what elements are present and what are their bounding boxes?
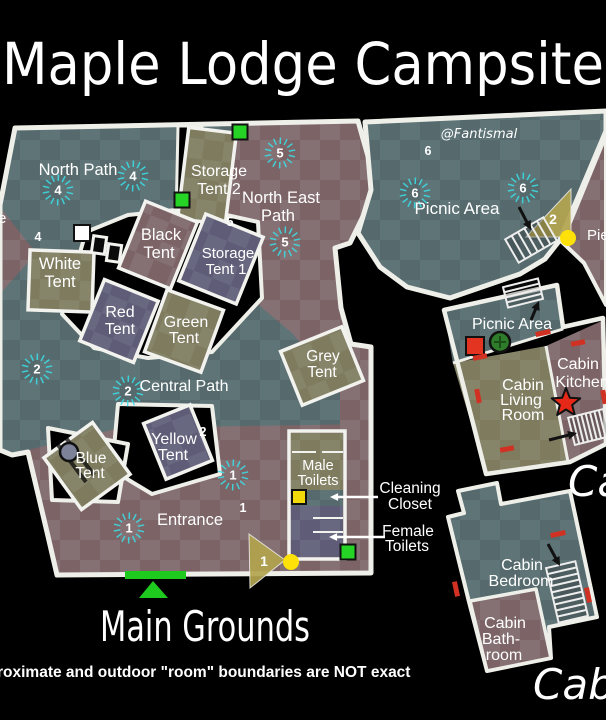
plain-number: 6 [425,144,432,158]
door-green-square-3 [341,545,356,560]
watermark: @Fantismal [441,127,518,142]
plain-number: 5 [227,215,234,229]
label-yellow-tent-2: Tent [158,447,189,464]
label-picnic-area-north: Picnic Area [414,199,500,218]
map-title: Maple Lodge Campsite [2,30,604,98]
label-cleaning-closet-1: Cleaning [379,480,440,497]
burst-number: 2 [124,384,131,399]
label-picnic-area-cabin: Picnic Area [472,316,552,333]
marker-number: 1 [260,553,268,569]
label-female-toilets-2: Toilets [385,538,429,555]
label-cabin-living-3: Room [502,407,545,424]
label-male-toilets-2: Toilets [297,473,338,489]
gate-post [106,244,121,263]
label-cabin-kitchen-2: Kitchen [555,374,606,391]
label-cleaning-closet-2: Closet [388,496,433,513]
burst-number: 4 [129,169,137,184]
label-cabin-bathroom-3: room [486,647,522,664]
label-cabin-bathroom-2: Bath- [482,631,520,648]
gate-post [91,236,106,255]
main-grounds-title: Main Grounds [100,602,310,651]
door-yellow-square [292,490,306,504]
burst-number: 4 [54,183,62,198]
label-pier-partial: Pie [587,227,606,244]
label-red-tent-2: Tent [105,321,136,338]
label-storage-tent-1-1: Storage [202,245,255,262]
burst-number: 1 [125,521,132,536]
label-west-partial: e [0,210,6,227]
label-north-east-path-2: Path [261,207,295,225]
plain-number: 1 [240,501,247,515]
label-grey-tent-1: Grey [306,348,340,365]
label-male-toilets-1: Male [302,458,333,474]
label-north-east-path-1: North East [242,189,320,207]
burst-number: 1 [229,468,236,483]
plain-number: 4 [35,230,42,244]
label-north-path: North Path [39,161,118,179]
label-red-tent-1: Red [105,304,134,321]
door-green-square-2 [233,125,248,140]
label-storage-tent-2-1: Storage [191,163,247,180]
dot-yellow-toilets [283,554,299,570]
obj-red-square [466,337,484,355]
label-storage-tent-1-2: Tent 1 [206,261,247,278]
label-grey-tent-2: Tent [307,364,337,381]
cabin-ground-floor-title: Cabin [533,660,606,709]
label-green-tent-2: Tent [169,330,200,347]
label-black-tent-1: Black [141,226,182,244]
marker-number: 2 [549,211,557,227]
label-central-path: Central Path [140,378,229,395]
door-green-square-1 [175,193,190,208]
entrance-bar-marker [125,571,186,579]
plain-number: 2 [200,425,207,439]
label-black-tent-2: Tent [143,244,175,262]
label-cabin-bathroom-1: Cabin [484,615,526,632]
campsite-map: Maple Lodge Campsite [0,0,606,720]
cabin-first-floor-title-partial: Ca [568,457,606,506]
label-green-tent-1: Green [164,314,208,331]
dot-yellow-pier [560,230,576,246]
burst-number: 2 [33,362,40,377]
label-cabin-bedroom-2: Bedroom [489,573,554,590]
burst-number: 6 [519,181,526,196]
label-storage-tent-2-2: Tent 2 [197,181,241,198]
door-white-square [74,225,90,241]
label-white-tent-2: Tent [44,273,76,291]
label-cabin-bedroom-1: Cabin [501,557,543,574]
label-blue-tent-2: Tent [75,465,105,482]
label-white-tent-1: White [39,255,81,273]
footer-note: roximate and outdoor "room" boundaries a… [0,664,410,681]
burst-number: 5 [281,235,288,250]
label-cabin-kitchen-1: Cabin [557,356,599,373]
label-yellow-tent-1: Yellow [151,431,197,448]
label-entrance: Entrance [157,511,223,529]
burst-number: 5 [276,146,283,161]
